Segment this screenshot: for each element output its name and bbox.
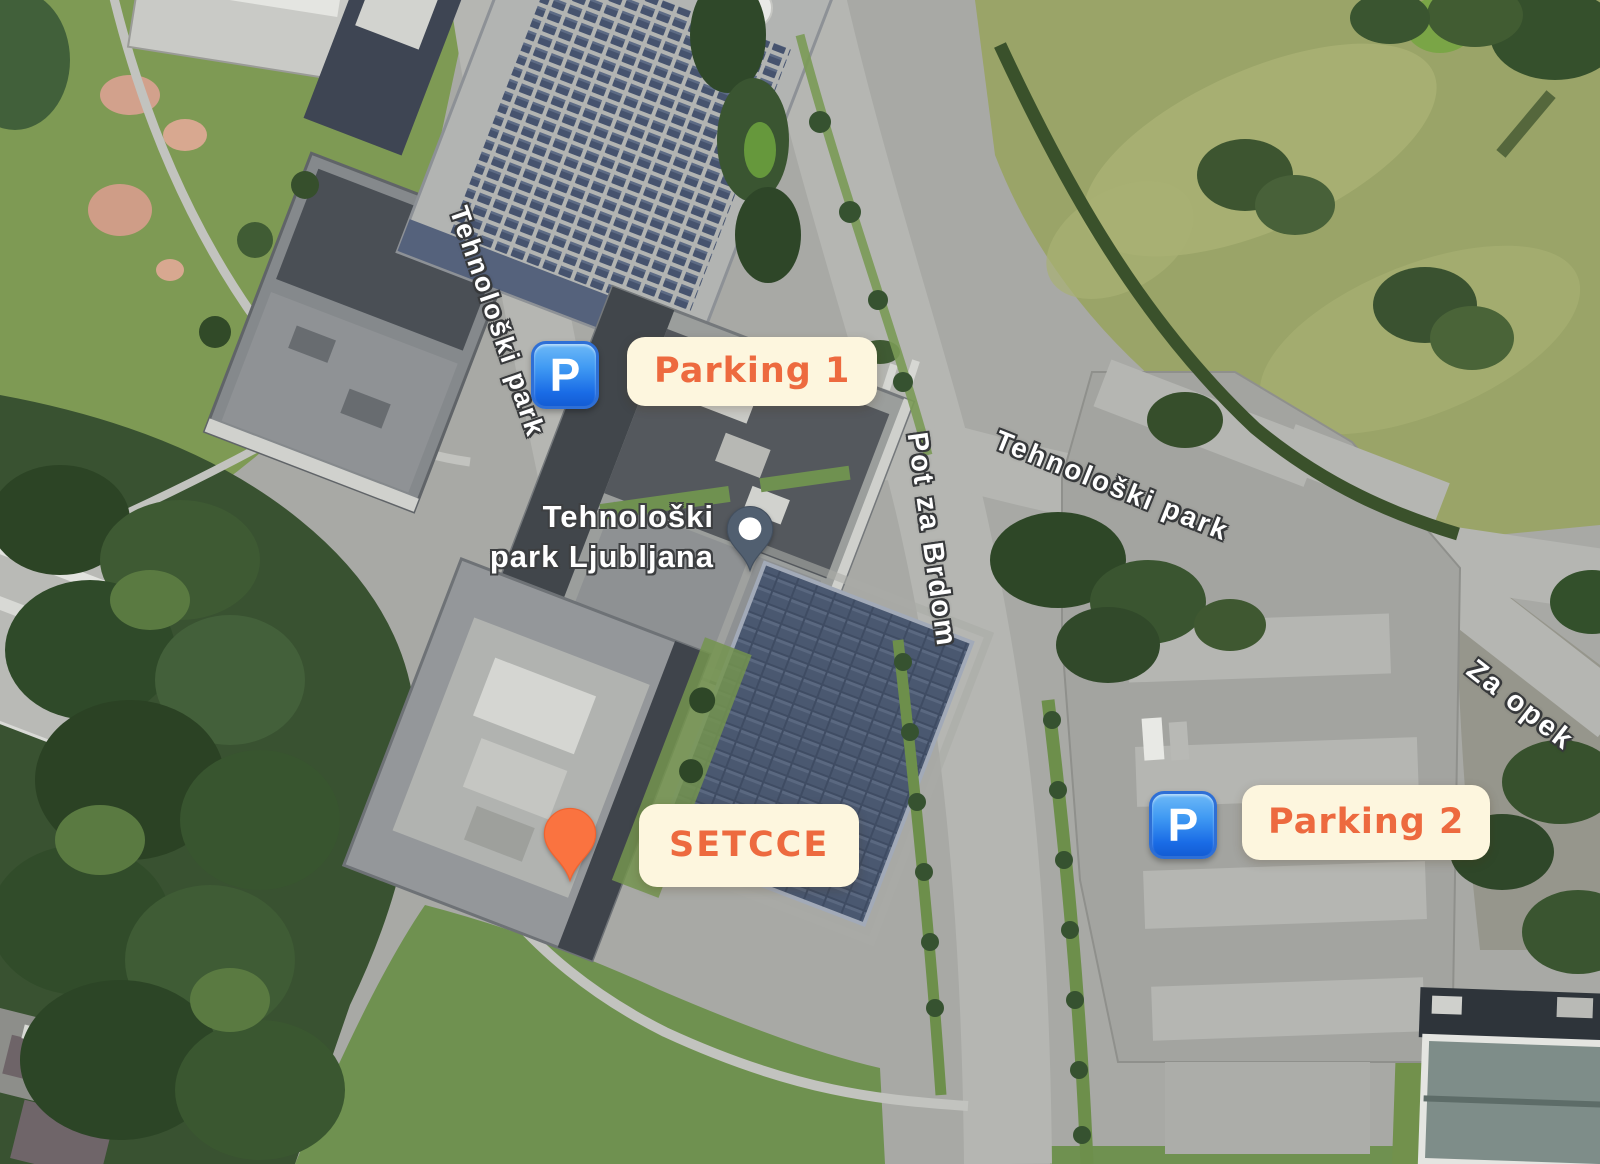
poi-label-tehnoloski-park-ljubljana[interactable]: Tehnološki park Ljubljana: [490, 497, 714, 576]
parking1-label[interactable]: Parking 1: [627, 337, 877, 406]
parking2-icon[interactable]: P: [1149, 791, 1217, 859]
parking2-icon-letter: P: [1168, 802, 1199, 848]
map-viewport[interactable]: Tehnološki park Pot za Brdom Tehnološki …: [0, 0, 1600, 1164]
building-pool-southeast: [1414, 987, 1600, 1164]
parking2-label[interactable]: Parking 2: [1242, 785, 1490, 860]
poi-label-line1: Tehnološki: [490, 497, 714, 537]
poi-label-line2: park Ljubljana: [490, 537, 714, 577]
satellite-imagery: [0, 0, 1600, 1164]
parking1-icon-letter: P: [550, 352, 581, 398]
parking1-icon[interactable]: P: [531, 341, 599, 409]
setcce-label[interactable]: SETCCE: [639, 804, 859, 887]
poi-pin-icon[interactable]: [724, 503, 776, 575]
setcce-pin-icon[interactable]: [540, 806, 600, 884]
